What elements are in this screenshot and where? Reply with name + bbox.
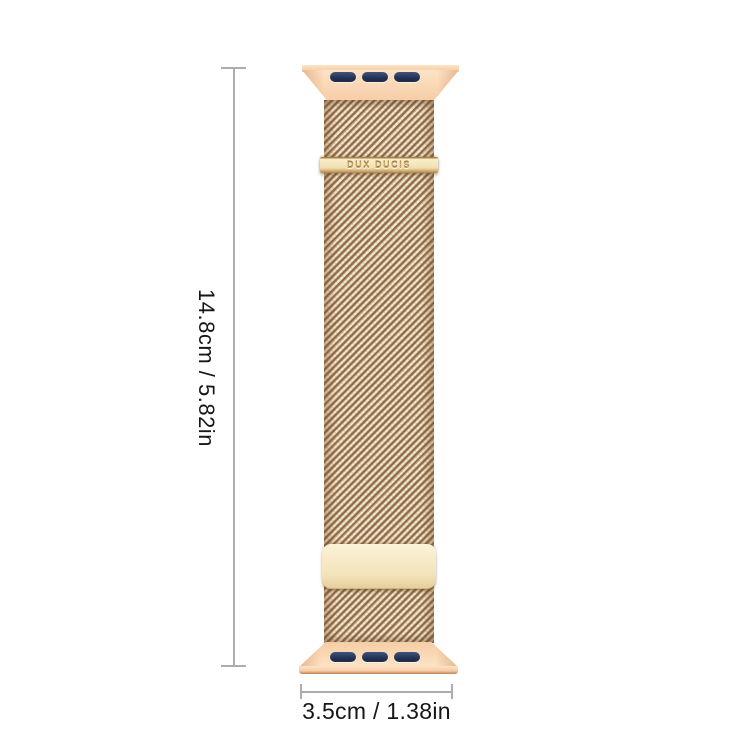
magnetic-clasp-plate xyxy=(322,544,436,589)
band-bottom-edge-bar xyxy=(299,666,458,674)
bottom-lug-slot-1 xyxy=(330,652,356,662)
brand-engraving: DUX DUCIS xyxy=(347,161,411,170)
horizontal-dimension-cap-right xyxy=(451,684,453,699)
band-length-label: 14.8cm / 5.82in xyxy=(188,68,224,667)
bottom-lug-slot-3 xyxy=(394,652,420,662)
product-image-stage: 14.8cm / 5.82in DUX DUCIS 3.5cm / 1.38in xyxy=(0,0,750,750)
bottom-lug-slot-2 xyxy=(362,652,388,662)
top-lug-slot-3 xyxy=(394,72,420,82)
top-lug-slot-1 xyxy=(330,72,356,82)
vertical-dimension-cap-bottom xyxy=(221,665,246,667)
vertical-dimension-line xyxy=(233,68,235,667)
top-lug-slot-2 xyxy=(362,72,388,82)
brand-clasp-band: DUX DUCIS xyxy=(320,157,438,173)
horizontal-dimension-line xyxy=(300,691,453,693)
band-width-label: 3.5cm / 1.38in xyxy=(279,698,474,725)
